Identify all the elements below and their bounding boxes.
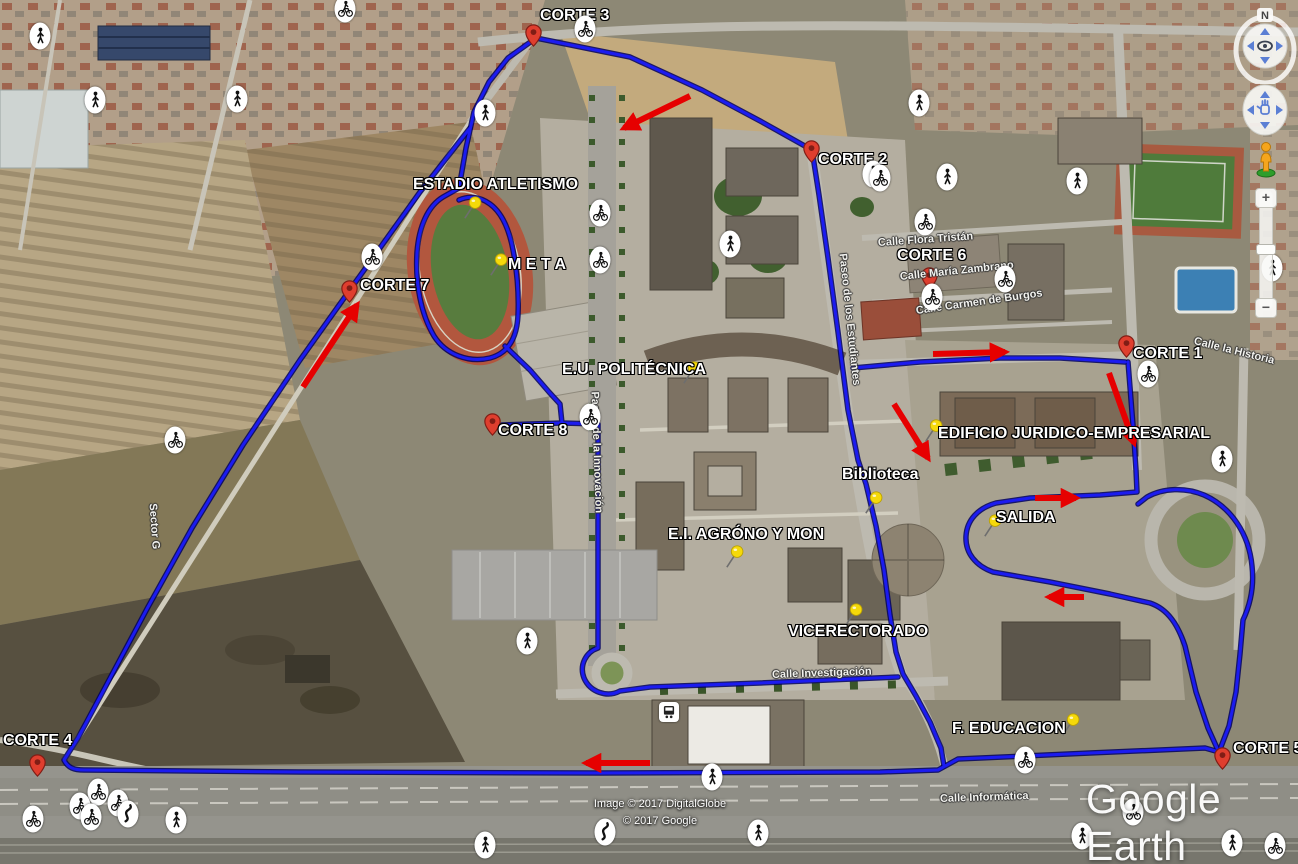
google-earth-logo: Google Earth — [1086, 776, 1298, 864]
pedestrian-icon[interactable] — [227, 86, 248, 113]
cyclist-icon[interactable] — [590, 200, 611, 227]
cyclist-icon[interactable] — [922, 284, 943, 311]
attribution-imagery: Image © 2017 DigitalGlobe — [535, 796, 785, 813]
cyclist-icon[interactable] — [1138, 361, 1159, 388]
pedestrian-icon[interactable] — [720, 231, 741, 258]
look-joystick[interactable] — [1241, 22, 1289, 70]
pedestrian-icon[interactable] — [702, 764, 723, 791]
place-label[interactable]: EDIFICIO JURIDICO-EMPRESARIAL — [938, 426, 1210, 442]
move-joystick[interactable] — [1241, 84, 1289, 136]
place-label[interactable]: SALIDA — [996, 510, 1056, 526]
cyclist-icon[interactable] — [165, 427, 186, 454]
street-label: Calle la Historia — [1193, 336, 1276, 367]
cyclist-icon[interactable] — [575, 16, 596, 43]
cyclist-icon[interactable] — [88, 779, 109, 806]
street-label: Paseo de los Estudiantes — [837, 253, 862, 386]
street-label: Calle Investigación — [772, 667, 872, 681]
cyclist-icon[interactable] — [915, 209, 936, 236]
winding-road-icon[interactable] — [118, 801, 139, 828]
pedestrian-icon[interactable] — [475, 100, 496, 127]
place-label[interactable]: E.I. AGRÓNO Y MON — [668, 527, 824, 543]
pegman[interactable] — [1253, 138, 1279, 178]
attribution-google: © 2017 Google — [535, 813, 785, 830]
cyclist-icon[interactable] — [23, 806, 44, 833]
pedestrian-icon[interactable] — [85, 87, 106, 114]
street-label: Calle Informática — [940, 791, 1029, 805]
attribution: Image © 2017 DigitalGlobe © 2017 Google — [535, 796, 785, 829]
cyclist-icon[interactable] — [335, 0, 356, 23]
corte-label[interactable]: CORTE 5 — [1233, 741, 1298, 757]
pedestrian-icon[interactable] — [1067, 168, 1088, 195]
pedestrian-icon[interactable] — [517, 628, 538, 655]
cyclist-icon[interactable] — [580, 404, 601, 431]
corte-label[interactable]: CORTE 7 — [360, 278, 429, 294]
corte-label[interactable]: CORTE 8 — [498, 423, 567, 439]
cyclist-icon[interactable] — [81, 804, 102, 831]
cyclist-icon[interactable] — [995, 266, 1016, 293]
place-label[interactable]: VICERECTORADO — [788, 624, 928, 640]
cyclist-icon[interactable] — [870, 165, 891, 192]
corte-pin[interactable] — [525, 24, 542, 52]
place-pushpin[interactable] — [863, 490, 883, 520]
pedestrian-icon[interactable] — [909, 90, 930, 117]
corte-pin[interactable] — [1118, 335, 1135, 363]
pedestrian-icon[interactable] — [475, 832, 496, 859]
transit-icon[interactable] — [659, 702, 679, 722]
pedestrian-icon[interactable] — [937, 164, 958, 191]
place-label[interactable]: E.U. POLITÉCNICA — [562, 362, 706, 378]
street-label: Sector G — [147, 503, 161, 550]
pedestrian-icon[interactable] — [166, 807, 187, 834]
corte-pin[interactable] — [29, 754, 46, 782]
corte-label[interactable]: CORTE 4 — [3, 733, 72, 749]
zoom-slider-knob[interactable] — [1256, 244, 1276, 255]
corte-label[interactable]: CORTE 6 — [897, 248, 966, 264]
corte-pin[interactable] — [803, 140, 820, 168]
place-label[interactable]: Biblioteca — [842, 467, 918, 483]
corte-pin[interactable] — [341, 280, 358, 308]
place-pushpin[interactable] — [488, 252, 508, 282]
pedestrian-icon[interactable] — [30, 23, 51, 50]
pedestrian-icon[interactable] — [1212, 446, 1233, 473]
place-label[interactable]: F. EDUCACION — [952, 721, 1066, 737]
place-label[interactable]: M E T A — [508, 257, 566, 273]
place-pushpin[interactable] — [462, 195, 482, 225]
zoom-out-button[interactable]: − — [1255, 298, 1277, 318]
corte-pin[interactable] — [1214, 747, 1231, 775]
zoom-in-button[interactable]: + — [1255, 188, 1277, 208]
corte-label[interactable]: CORTE 1 — [1133, 346, 1202, 362]
corte-label[interactable]: CORTE 3 — [540, 8, 609, 24]
cyclist-icon[interactable] — [362, 244, 383, 271]
place-pushpin[interactable] — [724, 544, 744, 574]
compass-north-label: N — [1261, 10, 1269, 22]
cyclist-icon[interactable] — [1015, 747, 1036, 774]
cyclist-icon[interactable] — [590, 247, 611, 274]
place-label[interactable]: ESTADIO ATLETISMO — [413, 177, 578, 193]
map-canvas[interactable]: CORTE 1CORTE 2CORTE 3CORTE 4CORTE 5CORTE… — [0, 0, 1298, 864]
